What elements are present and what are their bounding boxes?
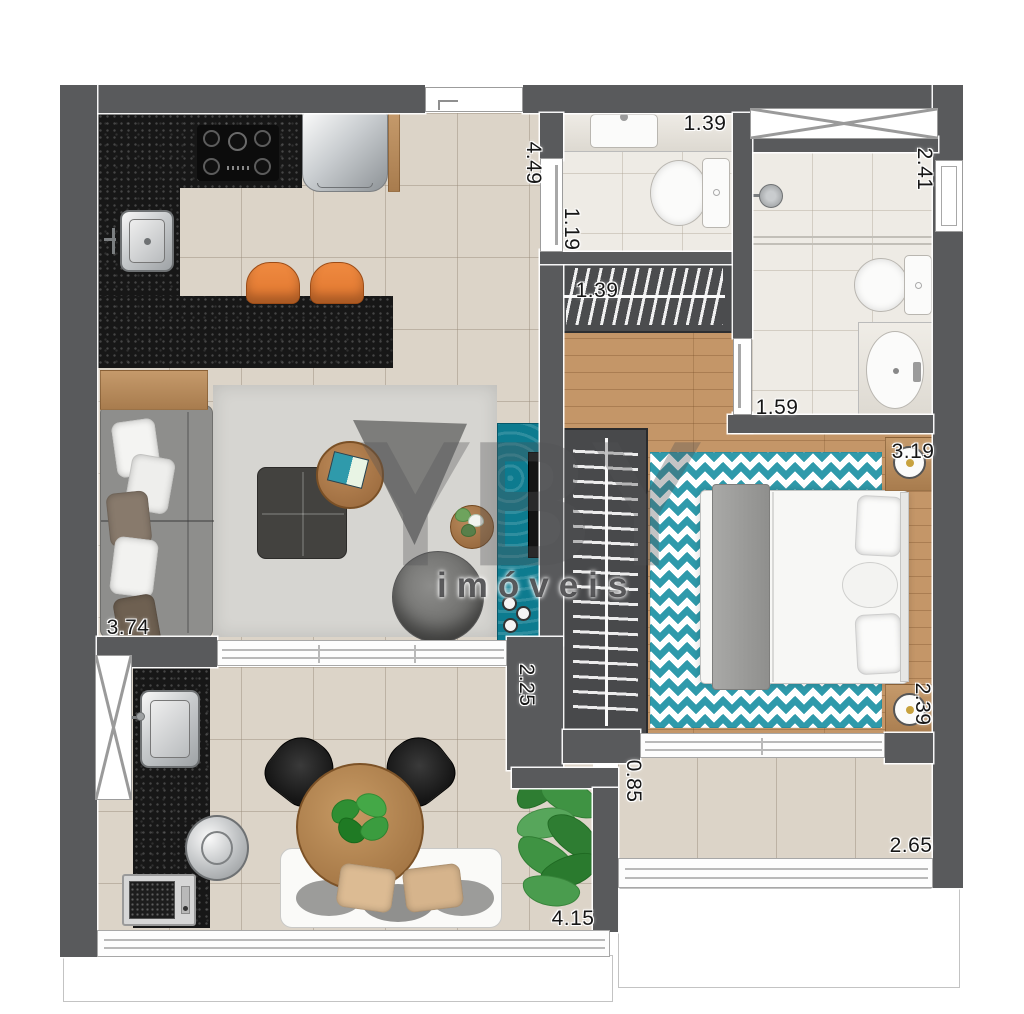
toilet-icon [650, 160, 708, 226]
kitchen-peninsula [97, 296, 393, 368]
balcony-floor [618, 757, 933, 858]
balcony-railing [618, 858, 933, 888]
shower-window [935, 160, 963, 232]
bed-pillow [854, 613, 903, 675]
wall-top-left [60, 85, 425, 113]
bar-stool [246, 262, 300, 304]
bath2-basin [866, 331, 924, 409]
bed-blanket [712, 484, 770, 690]
sofa-pillow [109, 536, 160, 599]
shower-partition [752, 243, 933, 245]
floor-plan: 4.49 1.39 2.41 1.19 1.39 1.59 3.19 3.74 … [0, 0, 1024, 1014]
washing-machine-icon [185, 815, 249, 881]
terrace-shaft-window [95, 655, 132, 800]
bar-stool [310, 262, 364, 304]
balcony-projection-line [618, 888, 960, 988]
dim-bath2-width: 1.59 [756, 396, 799, 420]
dim-balcony-width: 2.65 [890, 834, 933, 858]
terrace-sink [140, 690, 200, 768]
dim-balcony-depth: 0.85 [621, 760, 645, 803]
kitchen-faucet-icon [102, 226, 122, 256]
refrigerator-icon [302, 112, 388, 192]
wall-bath1-bottom [540, 252, 733, 264]
kitchen-sink [120, 210, 174, 272]
bed-headboard [900, 492, 909, 682]
dim-living-length: 3.74 [107, 616, 150, 640]
wall-bed-window-left [563, 730, 640, 763]
dim-bath1-width: 1.39 [684, 112, 727, 136]
terrace-projection-line [63, 955, 613, 1002]
bath1-basin [590, 114, 658, 148]
bench-pillow [335, 862, 397, 913]
terrace-railing [97, 930, 610, 957]
bed-lumbar-pillow [842, 562, 898, 608]
wall-terrace-step [512, 768, 618, 788]
living-sliding-door [217, 640, 507, 666]
wall-bed-window-right [885, 733, 933, 763]
dim-entry-hall: 4.49 [521, 142, 545, 185]
dim-bedroom-width: 2.39 [910, 683, 934, 726]
toilet-tank [904, 255, 932, 315]
bathroom2-door [733, 338, 752, 415]
dim-bedroom-length: 3.19 [892, 440, 935, 464]
dim-bath1-length: 1.19 [559, 208, 583, 251]
bathroom2-window [750, 108, 938, 139]
bed-pillow [854, 495, 903, 557]
sideboard [100, 370, 208, 410]
watermark-subtitle: imóveis [437, 566, 637, 606]
fridge-side-panel [388, 112, 400, 192]
entry-door [425, 87, 523, 112]
grill-icon [122, 874, 196, 926]
bedroom-sliding-door [640, 733, 885, 758]
toilet-tank [702, 158, 730, 228]
dim-terrace-depth: 2.25 [514, 664, 538, 707]
shower-partition [752, 236, 933, 238]
toilet-icon [854, 258, 908, 312]
wall-below-window [750, 137, 938, 152]
wall-left [60, 85, 97, 957]
bench-pillow [402, 863, 465, 914]
dim-closet-width: 1.39 [576, 279, 619, 303]
bed-duvet-fold [772, 492, 774, 682]
wall-bath-divider [733, 113, 752, 338]
dim-bath2-length: 2.41 [912, 148, 936, 191]
wall-balcony-left [593, 788, 618, 932]
cooktop-icon [197, 125, 279, 181]
dim-terrace-width: 4.15 [552, 907, 595, 931]
